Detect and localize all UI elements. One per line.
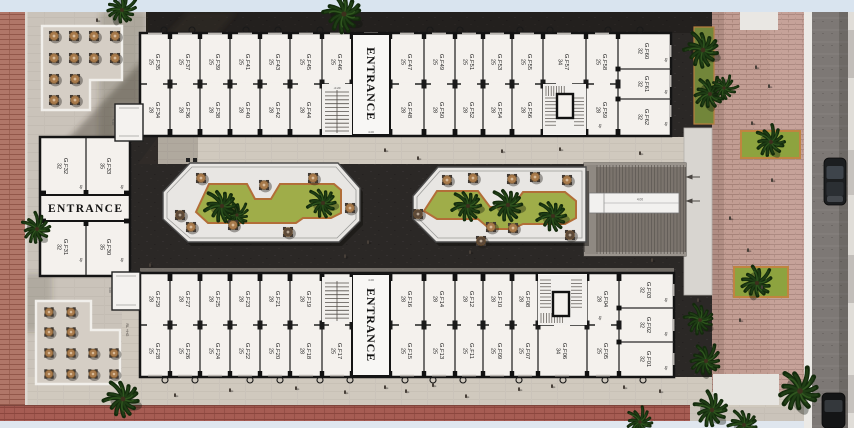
svg-text:G.F07: G.F07	[524, 343, 530, 359]
svg-text:25: 25	[462, 348, 468, 354]
svg-text:G.F19: G.F19	[305, 291, 311, 307]
svg-text:25: 25	[238, 59, 244, 65]
svg-text:G.F18: G.F18	[305, 343, 311, 360]
svg-text:ENTRANCE: ENTRANCE	[364, 47, 378, 121]
svg-text:G.F10: G.F10	[496, 291, 502, 308]
svg-text:G.F16: G.F16	[406, 291, 412, 308]
svg-text:25: 25	[330, 59, 336, 65]
svg-text:G.F55: G.F55	[526, 54, 532, 71]
svg-text:28: 28	[178, 107, 184, 113]
svg-text:4.00: 4.00	[637, 198, 643, 202]
svg-text:28: 28	[520, 107, 526, 113]
svg-text:G.F12: G.F12	[468, 291, 474, 307]
svg-text:G.F20: G.F20	[274, 343, 280, 360]
svg-text:Up: Up	[664, 90, 668, 95]
svg-text:G.F11: G.F11	[468, 343, 474, 359]
svg-text:G.F31: G.F31	[62, 239, 68, 255]
svg-text:25: 25	[238, 348, 244, 354]
svg-text:25: 25	[462, 59, 468, 65]
svg-text:G.F01: G.F01	[645, 351, 651, 367]
svg-text:G.F26: G.F26	[184, 343, 190, 360]
svg-text:G.F49: G.F49	[438, 54, 444, 70]
svg-text:25: 25	[400, 59, 406, 65]
svg-text:G.F30: G.F30	[105, 239, 111, 256]
svg-text:25: 25	[299, 59, 305, 65]
svg-text:28: 28	[208, 296, 214, 302]
svg-text:35: 35	[99, 163, 105, 169]
svg-text:25: 25	[178, 348, 184, 354]
svg-text:4.00: 4.00	[368, 130, 374, 134]
svg-text:25: 25	[268, 348, 274, 354]
svg-text:32: 32	[637, 81, 643, 87]
svg-text:28: 28	[518, 296, 524, 302]
svg-text:32: 32	[639, 356, 645, 362]
svg-text:G.F38: G.F38	[214, 102, 220, 119]
svg-text:G.F61: G.F61	[643, 76, 649, 92]
svg-text:25: 25	[520, 59, 526, 65]
svg-text:28: 28	[208, 107, 214, 113]
svg-text:28: 28	[148, 296, 154, 302]
svg-text:25: 25	[148, 348, 154, 354]
svg-text:G.F50: G.F50	[438, 102, 444, 119]
svg-text:Up: Up	[664, 332, 668, 337]
svg-text:25: 25	[432, 59, 438, 65]
svg-text:28: 28	[178, 296, 184, 302]
svg-text:G.F35: G.F35	[154, 54, 160, 71]
svg-text:32: 32	[639, 322, 645, 328]
svg-text:28: 28	[490, 107, 496, 113]
svg-text:G.F51: G.F51	[468, 54, 474, 70]
svg-text:G.F56: G.F56	[526, 102, 532, 119]
svg-text:RL +HG: RL +HG	[125, 324, 129, 337]
svg-text:25: 25	[268, 59, 274, 65]
svg-text:G.F41: G.F41	[244, 54, 250, 70]
svg-text:32: 32	[639, 287, 645, 293]
svg-text:G.F15: G.F15	[406, 343, 412, 360]
svg-text:G.F03: G.F03	[645, 282, 651, 299]
svg-text:G.F42: G.F42	[274, 102, 280, 118]
svg-text:28: 28	[238, 107, 244, 113]
svg-text:25: 25	[178, 59, 184, 65]
svg-text:G.F23: G.F23	[244, 291, 250, 308]
svg-text:28: 28	[268, 107, 274, 113]
svg-text:25: 25	[208, 348, 214, 354]
svg-text:28: 28	[400, 107, 406, 113]
svg-text:Up: Up	[664, 122, 668, 127]
svg-text:28: 28	[299, 348, 305, 354]
svg-text:28: 28	[238, 296, 244, 302]
svg-text:G.F09: G.F09	[496, 343, 502, 359]
svg-text:G.F46: G.F46	[336, 54, 342, 71]
svg-text:-0.20: -0.20	[334, 86, 341, 90]
svg-text:ENTRANCE: ENTRANCE	[48, 203, 122, 215]
svg-text:25: 25	[330, 348, 336, 354]
svg-text:G.F45: G.F45	[305, 54, 311, 71]
svg-text:G.F53: G.F53	[496, 54, 502, 71]
svg-text:28: 28	[596, 296, 602, 302]
svg-text:G.F02: G.F02	[645, 317, 651, 333]
svg-text:Up: Up	[79, 185, 83, 190]
svg-text:G.F40: G.F40	[244, 102, 250, 119]
svg-text:G.F52: G.F52	[468, 102, 474, 118]
svg-text:G.F34: G.F34	[154, 102, 160, 119]
svg-text:25: 25	[595, 59, 601, 65]
svg-text:25: 25	[208, 59, 214, 65]
svg-text:Up: Up	[598, 316, 602, 321]
svg-text:G.F32: G.F32	[62, 158, 68, 174]
svg-text:G.F25: G.F25	[214, 291, 220, 308]
svg-text:G.F24: G.F24	[214, 343, 220, 360]
svg-text:G.F17: G.F17	[336, 343, 342, 359]
svg-text:G.F36: G.F36	[184, 102, 190, 119]
svg-text:G.F04: G.F04	[602, 291, 608, 308]
svg-text:Up: Up	[120, 258, 124, 263]
svg-text:G.F27: G.F27	[184, 291, 190, 307]
svg-text:32: 32	[637, 114, 643, 120]
svg-text:G.F29: G.F29	[154, 291, 160, 307]
svg-text:G.F47: G.F47	[406, 54, 412, 70]
svg-text:28: 28	[148, 107, 154, 113]
svg-text:G.F59: G.F59	[601, 102, 607, 118]
svg-text:G.F43: G.F43	[274, 54, 280, 71]
svg-text:ENTRANCE: ENTRANCE	[364, 288, 378, 362]
svg-text:25: 25	[518, 348, 524, 354]
svg-text:25: 25	[596, 348, 602, 354]
svg-text:28: 28	[462, 107, 468, 113]
svg-text:Up: Up	[664, 298, 668, 303]
svg-text:32: 32	[56, 163, 62, 169]
svg-text:28: 28	[432, 296, 438, 302]
svg-text:G.F44: G.F44	[305, 102, 311, 119]
svg-text:G.F08: G.F08	[524, 291, 530, 308]
svg-text:4.00: 4.00	[368, 278, 374, 282]
svg-text:5.10: 5.10	[111, 119, 115, 125]
svg-text:25: 25	[400, 348, 406, 354]
svg-text:Up: Up	[664, 366, 668, 371]
svg-text:G.F39: G.F39	[214, 54, 220, 70]
svg-text:25: 25	[148, 59, 154, 65]
svg-text:G.F60: G.F60	[643, 43, 649, 60]
svg-text:G.F48: G.F48	[406, 102, 412, 119]
svg-text:35: 35	[99, 244, 105, 250]
svg-text:G.F33: G.F33	[105, 158, 111, 175]
svg-text:Up: Up	[664, 58, 668, 63]
svg-text:28: 28	[400, 296, 406, 302]
svg-text:32: 32	[637, 48, 643, 54]
svg-text:28: 28	[462, 296, 468, 302]
svg-text:G.F58: G.F58	[601, 54, 607, 71]
svg-text:Up: Up	[79, 258, 83, 263]
svg-text:G.F14: G.F14	[438, 291, 444, 308]
svg-text:G.F37: G.F37	[184, 54, 190, 70]
svg-text:28: 28	[299, 296, 305, 302]
svg-text:28: 28	[299, 107, 305, 113]
svg-text:G.F05: G.F05	[602, 343, 608, 360]
svg-text:25: 25	[490, 348, 496, 354]
svg-text:28: 28	[595, 107, 601, 113]
svg-text:Up: Up	[120, 185, 124, 190]
svg-text:Up: Up	[598, 124, 602, 129]
svg-text:G.F21: G.F21	[274, 291, 280, 307]
svg-text:G.F13: G.F13	[438, 343, 444, 360]
svg-text:G.F28: G.F28	[154, 343, 160, 360]
svg-text:28: 28	[268, 296, 274, 302]
svg-text:G.F57: G.F57	[563, 54, 569, 70]
svg-text:32: 32	[56, 244, 62, 250]
svg-text:28: 28	[432, 107, 438, 113]
svg-text:25: 25	[432, 348, 438, 354]
svg-text:4.00: 4.00	[108, 287, 112, 293]
svg-text:G.F22: G.F22	[244, 343, 250, 359]
svg-text:25: 25	[490, 59, 496, 65]
svg-text:G.F62: G.F62	[643, 109, 649, 125]
svg-text:28: 28	[490, 296, 496, 302]
svg-text:34: 34	[557, 59, 563, 65]
svg-text:34: 34	[555, 348, 561, 354]
svg-text:G.F06: G.F06	[561, 343, 567, 360]
svg-text:G.F54: G.F54	[496, 102, 502, 119]
